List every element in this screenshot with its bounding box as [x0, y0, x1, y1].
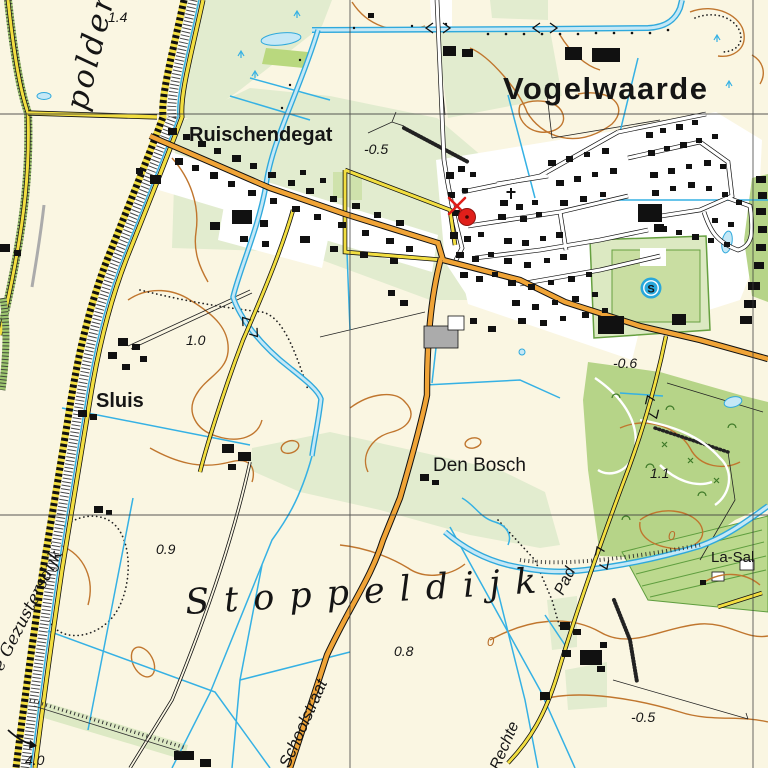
- spot-height: 1.0: [186, 332, 206, 348]
- hamlet-label-ruischendegat: Ruischendegat: [189, 124, 333, 146]
- map-canvas[interactable]: S Vogelwaarde Ruischendegat Sluis Den Bo…: [0, 0, 768, 768]
- topographic-map[interactable]: S Vogelwaarde Ruischendegat Sluis Den Bo…: [0, 0, 768, 768]
- spot-height: 4.0: [25, 752, 45, 768]
- town-label: Vogelwaarde: [503, 71, 708, 106]
- spot-height: -0.6: [613, 355, 637, 371]
- spot-height: 1.1: [650, 465, 669, 481]
- contour-label: 0: [487, 634, 495, 649]
- hamlet-label-sluis: Sluis: [96, 390, 144, 412]
- contour-label: 0: [668, 528, 676, 543]
- spot-height: 0.8: [394, 643, 414, 659]
- red-location-marker: [459, 209, 476, 226]
- sports-field-letter: S: [647, 284, 654, 296]
- spot-height: -0.5: [631, 709, 655, 725]
- spot-height: 1.4: [108, 9, 128, 25]
- spot-height: 0.9: [156, 541, 176, 557]
- locality-label-den-bosch: Den Bosch: [433, 455, 526, 476]
- estate-label-la-salette: La-Sal: [711, 549, 754, 566]
- sports-field-icon: S: [641, 278, 662, 299]
- spot-height: -0.5: [364, 141, 388, 157]
